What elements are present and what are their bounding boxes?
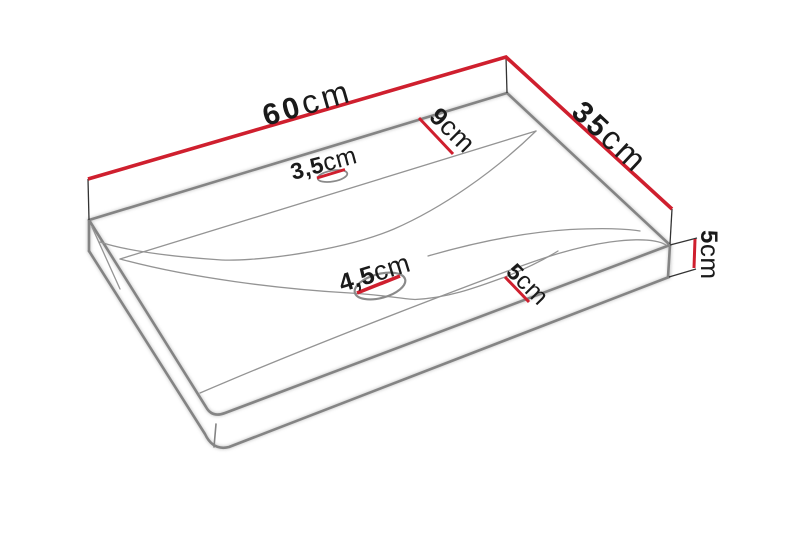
svg-text:35cm: 35cm	[565, 92, 656, 180]
svg-text:5cm: 5cm	[695, 230, 725, 280]
svg-text:5cm: 5cm	[501, 257, 554, 310]
svg-text:4,5cm: 4,5cm	[335, 248, 414, 298]
svg-text:60cm: 60cm	[258, 72, 356, 133]
